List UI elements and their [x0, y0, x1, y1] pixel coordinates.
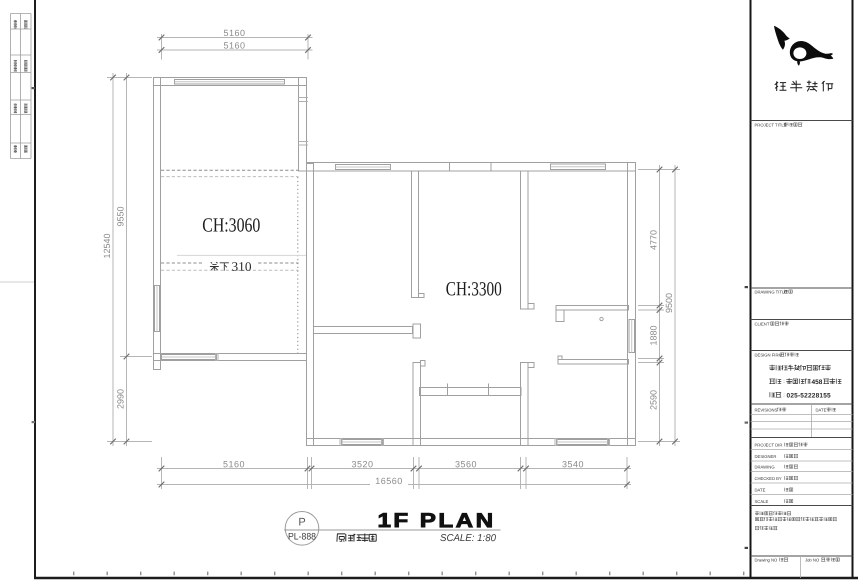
svg-text:CLIENT: CLIENT: [754, 322, 769, 327]
svg-text:458: 458: [811, 379, 822, 386]
svg-text:16560: 16560: [375, 476, 403, 486]
svg-text:4770: 4770: [648, 230, 658, 250]
svg-text:025-52228155: 025-52228155: [786, 393, 831, 400]
svg-text:9500: 9500: [664, 293, 674, 313]
svg-text:CH:3060: CH:3060: [202, 215, 260, 237]
svg-text:310: 310: [231, 259, 251, 274]
svg-text:DATE: DATE: [754, 488, 765, 493]
svg-text:DESIGN FIRM: DESIGN FIRM: [754, 353, 782, 358]
svg-text:9550: 9550: [115, 206, 125, 226]
svg-text:5160: 5160: [223, 459, 245, 469]
svg-text:12540: 12540: [102, 233, 112, 258]
svg-text:5160: 5160: [223, 40, 245, 50]
svg-text:REVISIONS: REVISIONS: [754, 408, 777, 413]
svg-text:PL-888: PL-888: [288, 531, 316, 542]
svg-text:2590: 2590: [648, 390, 658, 410]
svg-text:1880: 1880: [648, 325, 658, 345]
svg-text:3520: 3520: [351, 459, 373, 469]
svg-text:SCALE: 1:80: SCALE: 1:80: [440, 533, 496, 544]
svg-text:Drawing NO: Drawing NO: [754, 558, 778, 563]
svg-text:1F PLAN: 1F PLAN: [377, 510, 495, 532]
svg-text:PROJECT TITLE: PROJECT TITLE: [754, 123, 786, 128]
svg-text:DESIGNER: DESIGNER: [754, 454, 776, 459]
svg-text:SCALE: SCALE: [754, 499, 768, 504]
svg-text:PROJECT DIR: PROJECT DIR: [754, 443, 782, 448]
svg-text:CH:3300: CH:3300: [446, 278, 502, 300]
svg-text:3540: 3540: [562, 459, 584, 469]
svg-text:5160: 5160: [223, 28, 245, 38]
svg-text:CHECKED BY: CHECKED BY: [754, 476, 781, 481]
svg-text:DRAWING TITLE: DRAWING TITLE: [754, 290, 787, 295]
svg-text:P: P: [298, 516, 305, 528]
svg-text:DRAWING: DRAWING: [754, 465, 774, 470]
svg-text:DATE: DATE: [815, 408, 826, 413]
svg-text:2990: 2990: [115, 389, 125, 409]
svg-text:3560: 3560: [455, 459, 477, 469]
svg-text:Job NO: Job NO: [805, 558, 820, 563]
